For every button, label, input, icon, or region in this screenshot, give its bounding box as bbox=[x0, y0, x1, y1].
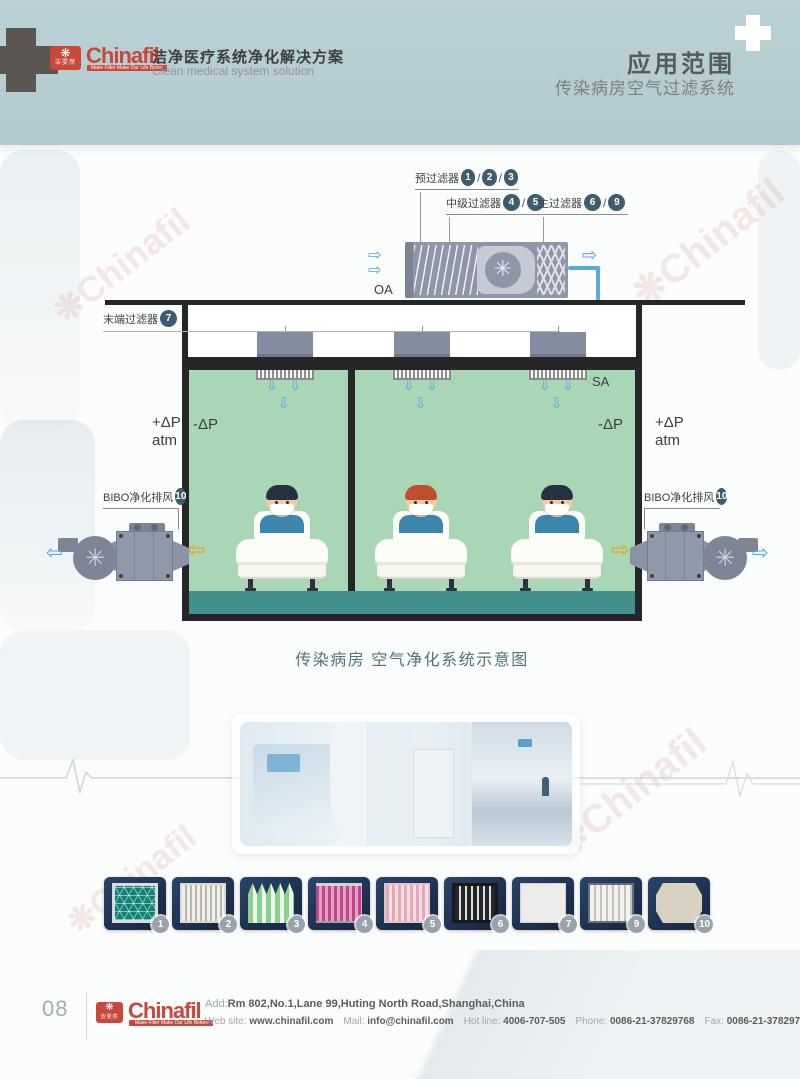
thumbnail-number-badge: 5 bbox=[424, 916, 441, 933]
exhaust-fan-icon: ✳ bbox=[703, 536, 747, 580]
supply-air-down-arrows: ⇩ ⇩ ⇩ bbox=[529, 376, 587, 412]
patient-bed bbox=[236, 487, 328, 605]
bed-base bbox=[513, 565, 601, 579]
diagram-caption: 传染病房 空气净化系统示意图 bbox=[182, 646, 642, 670]
address-label: Add: bbox=[205, 998, 228, 1010]
filter-photo bbox=[248, 883, 294, 923]
filter-number-badge: 6 bbox=[584, 194, 601, 211]
filter-thumbnail-pleated-panel: 2 bbox=[172, 877, 234, 930]
header-title-en: Clean medical system solution bbox=[152, 64, 314, 78]
filter-photo bbox=[520, 883, 566, 923]
contact-item: Hot line: 4006-707-505 bbox=[464, 1016, 566, 1027]
ahu-main-filter-section bbox=[537, 245, 565, 295]
contact-item: Web site: www.chinafil.com bbox=[205, 1016, 333, 1027]
logo-mark: ❋ 洁雯然 bbox=[96, 1002, 123, 1023]
page-subtitle: 传染病房空气过滤系统 bbox=[555, 74, 735, 99]
filter-number-badge: 1 bbox=[461, 169, 475, 186]
patient-head bbox=[406, 487, 436, 517]
photo-wall-sign bbox=[518, 739, 532, 747]
address-value: Rm 802,No.1,Lane 99,Huting North Road,Sh… bbox=[228, 998, 525, 1010]
terminal-filter-box bbox=[257, 332, 313, 357]
patient-bed bbox=[511, 487, 603, 605]
pressure-label-atm-left: atm bbox=[152, 432, 177, 449]
contact-item: Mail: info@chinafil.com bbox=[343, 1016, 453, 1027]
patient-bed bbox=[375, 487, 467, 605]
patient-head bbox=[267, 487, 297, 517]
bed-leg bbox=[585, 579, 590, 589]
filter-photo bbox=[180, 883, 226, 923]
white-cross-icon bbox=[735, 26, 771, 40]
thumbnail-number-badge: 6 bbox=[492, 916, 509, 933]
bed-leg bbox=[310, 579, 315, 589]
hospital-photo bbox=[240, 722, 572, 846]
filter-number-badge: 7 bbox=[160, 310, 177, 327]
label-leader-line bbox=[543, 217, 544, 243]
flower-icon: ❋ bbox=[60, 895, 106, 942]
bibo-filter-housing bbox=[647, 531, 704, 581]
footer-divider bbox=[86, 993, 87, 1039]
pressure-label-room-right: -ΔP bbox=[598, 416, 623, 433]
bed-leg bbox=[449, 579, 454, 589]
thumbnail-number-badge: 3 bbox=[288, 916, 305, 933]
outside-air-arrow-icon: ⇨ bbox=[368, 262, 381, 278]
bed-mattress bbox=[375, 539, 467, 565]
label-leader-line bbox=[449, 217, 450, 243]
thumbnail-number-badge: 4 bbox=[356, 916, 373, 933]
photo-monitor bbox=[267, 754, 300, 771]
contact-item: Fax: 0086-21-37829728 bbox=[704, 1016, 800, 1027]
face-mask bbox=[545, 504, 569, 515]
bed-mattress bbox=[511, 539, 603, 565]
patient-hair bbox=[405, 485, 437, 500]
terminal-filter-label: 末端过滤器 7 bbox=[103, 310, 177, 330]
pressure-label-outside-right: +ΔP bbox=[655, 414, 684, 431]
logo-tagline: Make Filter Make Our Life Better bbox=[129, 1020, 213, 1026]
bibo-exhaust-label-right: BIBO净化排风 10 bbox=[644, 488, 720, 509]
filter-photo bbox=[588, 883, 634, 923]
supply-air-down-arrows: ⇩ ⇩ ⇩ bbox=[256, 376, 314, 412]
thumbnail-number-badge: 2 bbox=[220, 916, 237, 933]
exhaust-air-arrow-icon: ⇦ bbox=[46, 542, 63, 562]
background-photo-faint-left-2 bbox=[0, 420, 95, 630]
footer-contacts: Web site: www.chinafil.com Mail: info@ch… bbox=[205, 1016, 800, 1027]
logo-mark: ❋ 洁雯然 bbox=[50, 46, 81, 70]
terminal-filter-box bbox=[530, 332, 586, 357]
prefilter-label: 预过滤器 1/2/3 bbox=[415, 169, 518, 190]
filter-thumbnail-bibo-housing: 10 bbox=[648, 877, 710, 930]
filter-thumbnail-pink-box: 5 bbox=[376, 877, 438, 930]
terminal-filter-riser bbox=[558, 326, 559, 333]
filter-number-badge: 4 bbox=[503, 194, 520, 211]
pressure-label-room-left: -ΔP bbox=[193, 416, 218, 433]
background-photo-faint-right bbox=[758, 150, 800, 370]
patient-torso bbox=[535, 515, 579, 533]
photo-door bbox=[413, 749, 455, 838]
room-exhaust-arrow-icon: ⇨ bbox=[611, 540, 629, 562]
flower-icon: ❋ bbox=[96, 1002, 123, 1014]
patient-head bbox=[542, 487, 572, 517]
filter-photo bbox=[452, 883, 498, 923]
face-mask bbox=[409, 504, 433, 515]
background-photo-faint-left bbox=[0, 150, 80, 430]
filter-product-gallery: 1 2 3 4 5 6 7 9 10 bbox=[104, 877, 710, 930]
pressure-label-outside-left: +ΔP bbox=[152, 414, 181, 431]
brochure-page: ❋Chinafil ❋Chinafil ❋Chinafil ❋Chinafil … bbox=[0, 0, 800, 1079]
ahu-inlet-panel bbox=[405, 242, 413, 298]
bed-leg bbox=[248, 579, 253, 589]
label-leader-line bbox=[644, 509, 645, 529]
face-mask bbox=[270, 504, 294, 515]
terminal-filter-riser bbox=[422, 326, 423, 333]
terminal-filter-box bbox=[394, 332, 450, 357]
ahu-prefilter-section bbox=[414, 245, 478, 295]
mid-filter-label: 中级过滤器 4/5 bbox=[446, 194, 544, 215]
main-filter-label: 主过滤器 6/9 bbox=[538, 194, 628, 215]
flower-icon: ❋ bbox=[50, 46, 81, 60]
filter-number-badge: 10 bbox=[716, 488, 727, 505]
page-header: ❋ 洁雯然 Chinafil Make Filter Make Our Life… bbox=[0, 0, 800, 145]
filter-number-badge: 3 bbox=[504, 169, 518, 186]
filter-thumbnail-v-bank: 6 bbox=[444, 877, 506, 930]
filter-thumbnail-green-mesh: 1 bbox=[104, 877, 166, 930]
supply-air-down-arrows: ⇩ ⇩ ⇩ bbox=[393, 376, 451, 412]
flower-icon: ❋ bbox=[44, 281, 93, 332]
filter-photo bbox=[316, 883, 362, 923]
thumbnail-number-badge: 9 bbox=[628, 916, 645, 933]
oa-label: OA bbox=[374, 282, 393, 297]
terminal-filter-leader-line bbox=[103, 331, 560, 332]
contact-item: Phone: 0086-21-37829768 bbox=[575, 1016, 694, 1027]
page-number: 08 bbox=[42, 996, 68, 1022]
bed-leg bbox=[387, 579, 392, 589]
terminal-filter-riser bbox=[285, 326, 286, 333]
bed-base bbox=[238, 565, 326, 579]
patient-torso bbox=[399, 515, 443, 533]
filter-photo bbox=[384, 883, 430, 923]
bibo-exhaust-label-left: BIBO净化排风 10 bbox=[103, 488, 179, 509]
photo-person-silhouette bbox=[542, 777, 549, 796]
thumbnail-number-badge: 7 bbox=[560, 916, 577, 933]
room-exhaust-arrow-icon: ⇦ bbox=[187, 540, 205, 562]
bed-leg bbox=[523, 579, 528, 589]
bed-base bbox=[377, 565, 465, 579]
filter-number-badge: 2 bbox=[482, 169, 496, 186]
filter-photo bbox=[656, 883, 702, 923]
filter-thumbnail-flat-panel: 7 bbox=[512, 877, 574, 930]
filter-number-badge: 9 bbox=[608, 194, 625, 211]
filter-thumbnail-green-pocket: 3 bbox=[240, 877, 302, 930]
photo-curtain bbox=[330, 729, 360, 828]
pressure-label-atm-right: atm bbox=[655, 432, 680, 449]
thumbnail-number-badge: 10 bbox=[696, 916, 713, 933]
exhaust-air-arrow-icon: ⇨ bbox=[752, 542, 769, 562]
filter-thumbnail-pink-pocket: 4 bbox=[308, 877, 370, 930]
brand-watermark: ❋Chinafil bbox=[623, 169, 793, 316]
filter-photo bbox=[112, 883, 158, 923]
exhaust-fan-icon: ✳ bbox=[73, 536, 117, 580]
air-handling-unit: ✳ bbox=[405, 242, 568, 298]
patient-torso bbox=[260, 515, 304, 533]
bibo-filter-housing bbox=[116, 531, 173, 581]
bed-mattress bbox=[236, 539, 328, 565]
sa-label: SA bbox=[592, 374, 609, 389]
filter-thumbnail-pleated-hepa: 9 bbox=[580, 877, 642, 930]
label-leader-line bbox=[420, 192, 421, 243]
thumbnail-number-badge: 1 bbox=[152, 916, 169, 933]
patient-hair bbox=[541, 485, 573, 500]
fan-icon: ✳ bbox=[485, 252, 521, 288]
supply-air-arrow-icon: ⇨ bbox=[582, 247, 597, 265]
label-leader-line bbox=[178, 509, 179, 529]
footer-address: Add:Rm 802,No.1,Lane 99,Huting North Roa… bbox=[205, 998, 525, 1010]
room-divider-wall bbox=[348, 370, 355, 614]
patient-hair bbox=[266, 485, 298, 500]
